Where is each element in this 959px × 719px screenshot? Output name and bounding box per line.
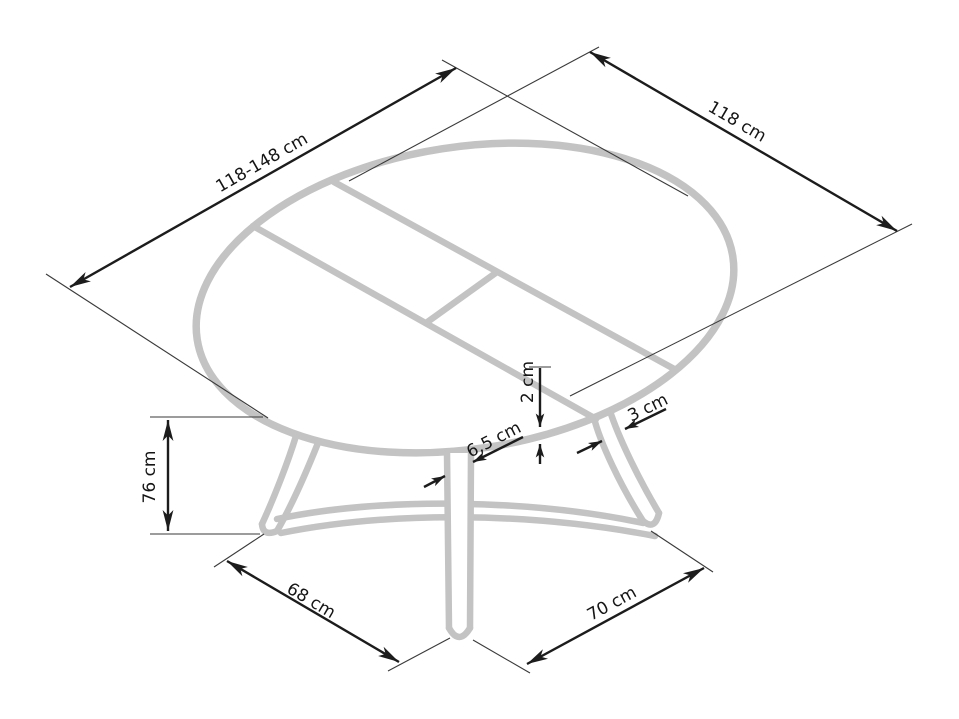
center-leg [447,453,471,637]
ext-line-70-left [473,640,530,673]
label-table-length: 118-148 cm [213,129,312,197]
label-table-height: 76 cm [140,451,160,504]
ext-line-68-left [214,534,264,567]
right-foot [643,513,659,525]
label-base-span-left: 68 cm [283,579,339,623]
ext-line-70-right [651,531,713,572]
ext-line-68-right [388,638,450,671]
label-table-width: 118 cm [704,97,769,146]
dimension-drawing: 118-148 cm 118 cm 76 cm 68 cm 70 cm 2 cm… [0,0,959,719]
left-foot [262,524,277,533]
dim-arrow-base-right [527,568,704,664]
drawing-canvas: 118-148 cm 118 cm 76 cm 68 cm 70 cm 2 cm… [0,0,959,719]
table-drawing [174,107,756,637]
label-tabletop-thickness: 2 cm [518,361,538,403]
